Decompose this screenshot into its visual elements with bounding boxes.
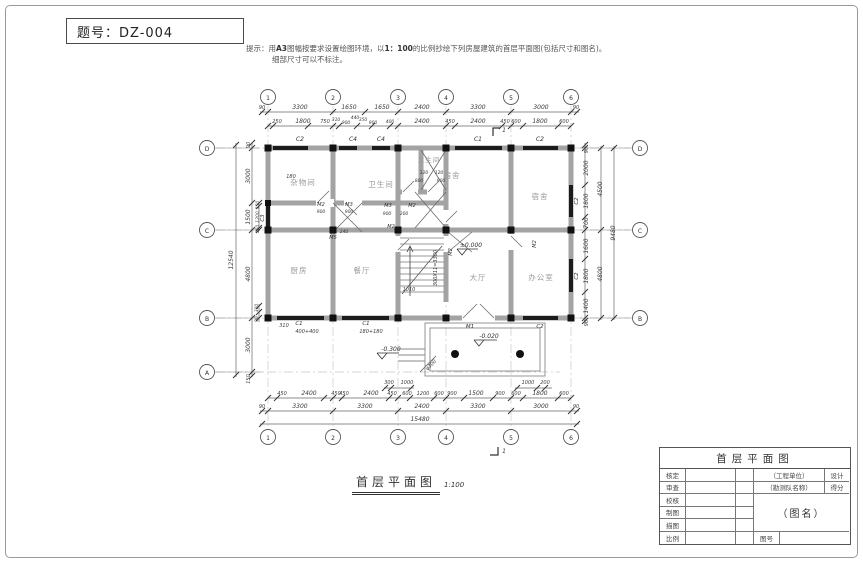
plan-label: 1000 bbox=[401, 380, 414, 386]
plan-label: C1 bbox=[295, 321, 302, 327]
plan-label: 1800 bbox=[532, 390, 547, 397]
plan-label: 6 bbox=[569, 435, 573, 442]
plan-label: 3000 bbox=[533, 403, 548, 410]
plan-label: 600 bbox=[511, 119, 521, 125]
plan-label: 3300 bbox=[292, 403, 307, 410]
plan-label: C4 bbox=[377, 136, 385, 143]
plan-label: 600 bbox=[511, 391, 521, 397]
plan-label: 900 bbox=[447, 391, 457, 397]
plan-label: 600 bbox=[434, 391, 444, 397]
plan-label: 1500 bbox=[245, 209, 252, 224]
plan-label: M2 bbox=[408, 203, 416, 209]
plan-label: 150 bbox=[255, 201, 261, 210]
plan-label: 310 bbox=[332, 117, 341, 123]
plan-label: 2400 bbox=[301, 390, 316, 397]
plan-label: 2400 bbox=[414, 118, 429, 125]
tb-label-review: 审查 bbox=[660, 482, 686, 495]
plan-label: 1800 bbox=[583, 268, 590, 283]
plan-label: 200 bbox=[400, 211, 409, 217]
plan-label: 4 bbox=[444, 95, 448, 102]
plan-label: 90 bbox=[584, 147, 590, 153]
plan-label: M2 bbox=[317, 202, 325, 208]
plan-label: 15480 bbox=[410, 416, 429, 423]
plan-label: M2 bbox=[448, 248, 454, 256]
plan-label: 120 bbox=[420, 170, 429, 176]
plan-label: 2000 bbox=[583, 160, 590, 175]
plan-label: C1 bbox=[362, 321, 369, 327]
plan-label: A bbox=[205, 370, 210, 377]
tb-label-scale: 比例 bbox=[660, 532, 686, 545]
plan-label: 900 bbox=[383, 211, 392, 217]
plan-label: 90 bbox=[584, 320, 590, 326]
tb-cell-empty bbox=[736, 482, 754, 495]
plan-label: 310 bbox=[254, 304, 260, 313]
plan-label: 900 bbox=[345, 209, 354, 215]
plan-label: 90 bbox=[246, 142, 252, 148]
plan-label: 90 bbox=[573, 404, 579, 410]
plan-label: 900 bbox=[317, 209, 326, 215]
plan-label: C2 bbox=[296, 136, 304, 143]
plan-label: C3 bbox=[260, 214, 266, 222]
plan-label: 1000 bbox=[522, 380, 535, 386]
plan-label: M3 bbox=[345, 202, 353, 208]
tb-cell-empty bbox=[686, 507, 736, 520]
plan-label: M2 bbox=[532, 240, 538, 248]
tb-cell-empty bbox=[686, 519, 736, 532]
plan-label: 450 bbox=[339, 391, 349, 397]
plan-label: 1650 bbox=[374, 104, 389, 111]
plan-label: 3300 bbox=[470, 104, 485, 111]
plan-label: 4500 bbox=[597, 181, 604, 196]
plan-label: 大厅 bbox=[470, 272, 487, 282]
tb-cell-empty bbox=[736, 532, 754, 545]
plan-label: 5 bbox=[509, 435, 513, 442]
plan-label: 450 bbox=[277, 391, 287, 397]
plan-label: 240 bbox=[340, 229, 349, 235]
plan-label: 120 bbox=[435, 170, 444, 176]
plan-label: C1 bbox=[474, 136, 482, 143]
plan-label: C2 bbox=[574, 197, 580, 205]
plan-label: 3300 bbox=[357, 403, 372, 410]
tb-cell-empty bbox=[736, 469, 754, 482]
tb-design: 设计 bbox=[825, 469, 849, 482]
plan-label: 900 bbox=[369, 120, 378, 126]
porch bbox=[398, 323, 545, 376]
plan-label: 2 bbox=[331, 95, 335, 102]
plan-label: 卫生间 bbox=[368, 179, 394, 189]
plan-label: 1 bbox=[502, 448, 506, 455]
plan-label: 3000 bbox=[245, 168, 252, 183]
plan-label: -0.020 bbox=[479, 333, 499, 340]
plan-label: C4 bbox=[349, 136, 357, 143]
plan-label: 180 bbox=[286, 174, 296, 180]
plan-label: B bbox=[205, 316, 209, 323]
plan-label: 400 bbox=[386, 119, 395, 125]
plan-label: 3300 bbox=[470, 403, 485, 410]
plan-label: 宿舍 bbox=[444, 170, 461, 180]
caption-scale: 1:100 bbox=[444, 481, 464, 489]
section-marks bbox=[490, 128, 500, 455]
tb-drawing-name: （图名） bbox=[754, 494, 849, 532]
tb-survey-team: （勘测队名称） bbox=[754, 482, 825, 495]
tb-cell-empty bbox=[736, 494, 754, 507]
plan-label: 600 bbox=[559, 119, 569, 125]
plan-label: 180+180 bbox=[359, 329, 382, 335]
plan-label: 3 bbox=[396, 435, 400, 442]
plan-label: 1500 bbox=[468, 390, 483, 397]
plan-label: 1 bbox=[502, 127, 506, 134]
plan-label: M5 bbox=[329, 235, 337, 241]
title-block-body: 核定 （工程单位） 设计 审查 （勘测队名称） 得分 校核 （图名） 制图 描图… bbox=[660, 469, 850, 544]
plan-label: 1800 bbox=[532, 118, 547, 125]
plan-label: 600 bbox=[559, 391, 569, 397]
tb-label-check: 校核 bbox=[660, 494, 686, 507]
plan-label: 900 bbox=[495, 391, 505, 397]
plan-label: 厨房 bbox=[291, 265, 308, 275]
plan-label: 150 bbox=[255, 225, 261, 234]
plan-label: 12540 bbox=[228, 250, 235, 269]
plan-label: φ300 bbox=[425, 359, 438, 372]
plan-label: C bbox=[638, 228, 642, 235]
plan-label: 600 bbox=[402, 391, 412, 397]
plan-label: 90 bbox=[573, 105, 579, 111]
plan-label: B bbox=[638, 316, 642, 323]
tb-label-draft: 制图 bbox=[660, 507, 686, 520]
plan-label: 350 bbox=[359, 117, 368, 123]
plan-label: M2 bbox=[387, 224, 395, 230]
plan-label: 2400 bbox=[363, 390, 378, 397]
plan-label: 1800 bbox=[583, 193, 590, 208]
plan-label: 3 bbox=[396, 95, 400, 102]
plan-label: 400+400 bbox=[295, 329, 318, 335]
plan-label: 3300 bbox=[292, 104, 307, 111]
tb-cell-empty bbox=[736, 507, 754, 520]
plan-label: 1010 bbox=[403, 287, 416, 293]
plan-label: 450 bbox=[387, 391, 397, 397]
plan-label: 4800 bbox=[597, 266, 604, 281]
tb-cell-empty bbox=[686, 482, 736, 495]
tb-cell-empty bbox=[686, 532, 736, 545]
plan-label: 450 bbox=[445, 119, 455, 125]
tb-score: 得分 bbox=[825, 482, 849, 495]
tb-label-trace: 描图 bbox=[660, 519, 686, 532]
plan-label: 1600 bbox=[583, 238, 590, 253]
plan-label: 1400 bbox=[583, 298, 590, 313]
plan-label: 9480 bbox=[610, 225, 617, 240]
plan-label: 4800 bbox=[245, 266, 252, 281]
plan-label: ±0.000 bbox=[460, 242, 482, 249]
drawing-sheet: 题号：DZ-004 提示：用A3图幅按要求设置绘图环境，以1：100的比例抄绘下… bbox=[0, 0, 863, 563]
plan-label: 1200 bbox=[417, 391, 430, 397]
plan-label: 250 bbox=[272, 119, 282, 125]
plan-label: 900 bbox=[437, 178, 446, 184]
tb-cell-empty bbox=[686, 494, 736, 507]
plan-label: 700 bbox=[583, 217, 590, 229]
title-block: 首层平面图 核定 （工程单位） 设计 审查 （勘测队名称） 得分 校核 （图名）… bbox=[659, 447, 851, 545]
tb-label-verify: 核定 bbox=[660, 469, 686, 482]
plan-label: 90 bbox=[259, 404, 265, 410]
plan-label: 150 bbox=[246, 374, 252, 384]
plan-label: C bbox=[205, 228, 209, 235]
plan-label: 卫生间 bbox=[418, 155, 441, 164]
plan-label: D bbox=[205, 146, 210, 153]
title-block-header: 首层平面图 bbox=[660, 448, 850, 469]
plan-label: 6 bbox=[569, 95, 573, 102]
plan-label: 3000 bbox=[533, 104, 548, 111]
plan-label: 90 bbox=[259, 105, 265, 111]
tb-cell-empty bbox=[686, 469, 736, 482]
plan-label: 2400 bbox=[414, 104, 429, 111]
plan-label: 800 bbox=[415, 178, 424, 184]
plan-label: 1 bbox=[266, 435, 270, 442]
tb-cell-empty bbox=[780, 532, 849, 545]
plan-label: 450 bbox=[500, 119, 510, 125]
plan-label: 300X11=3300 bbox=[433, 250, 439, 286]
caption-title: 首层平面图 bbox=[352, 473, 440, 495]
plan-label: 宿舍 bbox=[532, 191, 549, 201]
tb-org-unit: （工程单位） bbox=[754, 469, 825, 482]
plan-label: 1650 bbox=[341, 104, 356, 111]
plan-label: 900 bbox=[342, 120, 351, 126]
tb-drawing-no-label: 图号 bbox=[754, 532, 780, 545]
plan-label: 餐厅 bbox=[354, 266, 371, 275]
plan-label: C2 bbox=[574, 272, 580, 280]
plan-label: C2 bbox=[536, 324, 544, 330]
plan-label: M1 bbox=[466, 324, 474, 330]
plan-label: 1 bbox=[266, 95, 270, 102]
plan-label: 90 bbox=[254, 316, 260, 322]
plan-label: 3000 bbox=[245, 337, 252, 352]
plan-label: 2400 bbox=[414, 403, 429, 410]
plan-label: 300 bbox=[384, 380, 394, 386]
plan-label: 200 bbox=[540, 380, 550, 386]
plan-label: 5 bbox=[509, 95, 513, 102]
plan-label: 2 bbox=[331, 435, 335, 442]
plan-label: -0.300 bbox=[381, 346, 401, 353]
plan-label: 2400 bbox=[470, 118, 485, 125]
plan-label: C2 bbox=[536, 136, 544, 143]
plan-label: 310 bbox=[279, 323, 289, 329]
plan-label: 办公室 bbox=[528, 272, 554, 282]
drawing-caption: 首层平面图 1:100 bbox=[352, 473, 464, 495]
plan-label: 4 bbox=[444, 435, 448, 442]
plan-label: 750 bbox=[320, 119, 330, 125]
plan-label: 1800 bbox=[295, 118, 310, 125]
tb-cell-empty bbox=[736, 519, 754, 532]
plan-label: D bbox=[638, 146, 643, 153]
plan-label: M3 bbox=[384, 203, 392, 209]
